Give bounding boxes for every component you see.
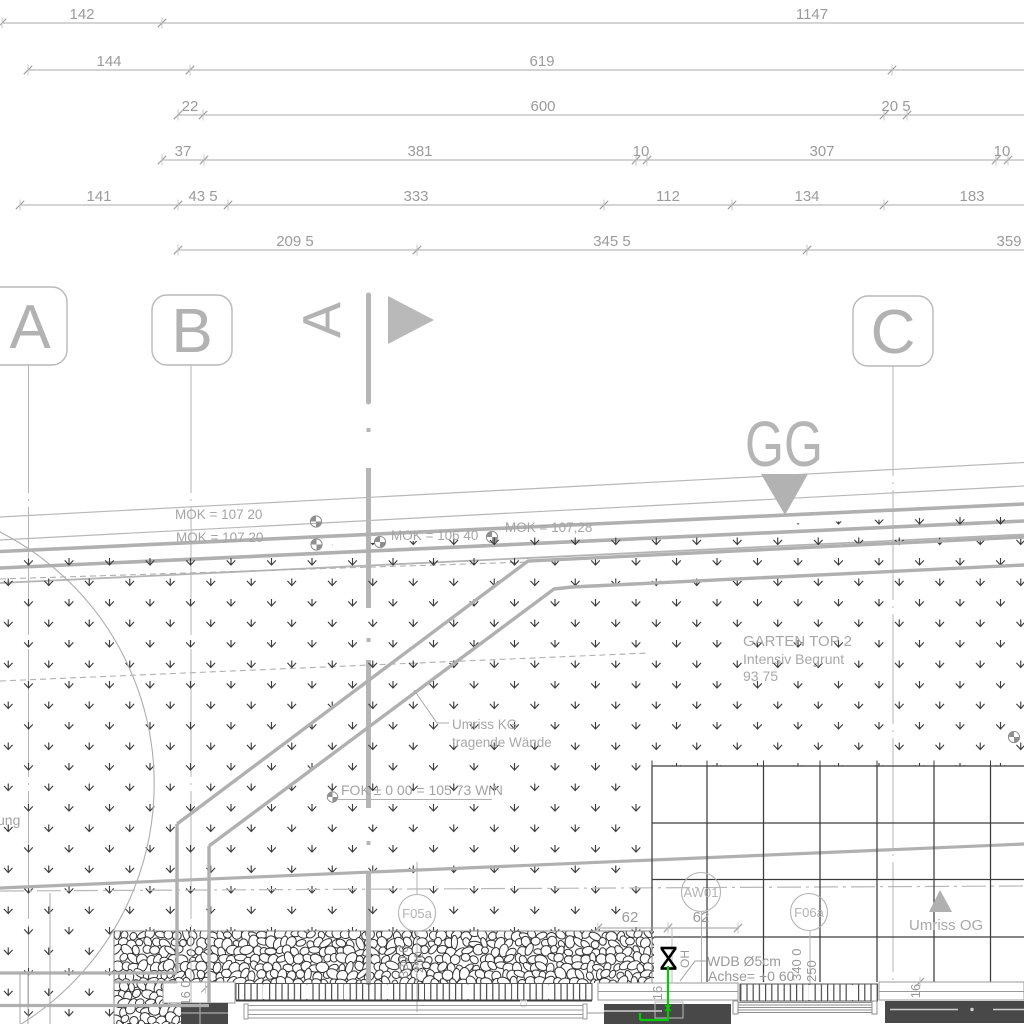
svg-text:209 5: 209 5 — [276, 233, 314, 250]
svg-text:43 5: 43 5 — [188, 188, 217, 205]
svg-text:340 0: 340 0 — [789, 948, 804, 981]
svg-text:tragende Wände: tragende Wände — [452, 735, 552, 750]
svg-text:ung: ung — [0, 812, 20, 828]
svg-text:Umriss KG: Umriss KG — [452, 717, 517, 732]
svg-text:16: 16 — [650, 986, 665, 1000]
svg-text:62: 62 — [693, 909, 710, 926]
svg-text:600: 600 — [530, 98, 555, 115]
svg-text:142: 142 — [69, 6, 94, 23]
svg-text:93 75: 93 75 — [743, 668, 778, 684]
svg-text:307: 307 — [809, 143, 834, 160]
svg-text:144: 144 — [96, 53, 121, 70]
svg-text:330 0: 330 0 — [396, 945, 411, 978]
svg-text:134: 134 — [794, 188, 819, 205]
svg-text:AW01: AW01 — [684, 885, 719, 900]
svg-text:333: 333 — [403, 188, 428, 205]
svg-text:16: 16 — [908, 984, 923, 998]
svg-text:10: 10 — [994, 143, 1011, 160]
svg-text:A: A — [9, 293, 51, 362]
svg-text:MOK = 107 20: MOK = 107 20 — [176, 530, 263, 545]
svg-text:GARTEN TOP 2: GARTEN TOP 2 — [743, 633, 852, 650]
svg-text:141: 141 — [86, 188, 111, 205]
svg-text:1147: 1147 — [796, 6, 828, 23]
svg-text:345 5: 345 5 — [593, 233, 631, 250]
svg-text:MOK = 107 20: MOK = 107 20 — [175, 507, 262, 522]
svg-text:250: 250 — [411, 951, 426, 973]
svg-text:381: 381 — [407, 143, 432, 160]
svg-text:F06a: F06a — [794, 905, 824, 920]
svg-text:WDB Ø5cm: WDB Ø5cm — [707, 953, 781, 969]
svg-text:F05a: F05a — [402, 906, 432, 921]
svg-text:619: 619 — [529, 53, 554, 70]
svg-text:22: 22 — [182, 98, 199, 115]
svg-text:A: A — [292, 302, 352, 338]
svg-text:MOK = 107,28: MOK = 107,28 — [505, 520, 592, 535]
svg-text:37: 37 — [175, 143, 192, 160]
svg-text:10: 10 — [633, 143, 650, 160]
svg-text:183: 183 — [959, 188, 984, 205]
svg-text:20 5: 20 5 — [881, 98, 910, 115]
svg-text:Umriss OG: Umriss OG — [909, 917, 983, 934]
svg-text:FOK ± 0 00 = 105 73 WrN: FOK ± 0 00 = 105 73 WrN — [341, 782, 503, 798]
svg-text:62: 62 — [622, 909, 639, 926]
svg-text:GG: GG — [745, 408, 823, 480]
svg-text:Achse= +0 60: Achse= +0 60 — [708, 968, 795, 984]
svg-text:250: 250 — [804, 960, 819, 982]
svg-text:Intensiv Begrunt: Intensiv Begrunt — [743, 651, 844, 667]
svg-text:359: 359 — [996, 233, 1021, 250]
svg-text:B: B — [171, 297, 212, 366]
svg-text:C: C — [871, 298, 916, 367]
svg-text:OH: OH — [678, 950, 692, 968]
svg-text:112: 112 — [656, 188, 680, 205]
